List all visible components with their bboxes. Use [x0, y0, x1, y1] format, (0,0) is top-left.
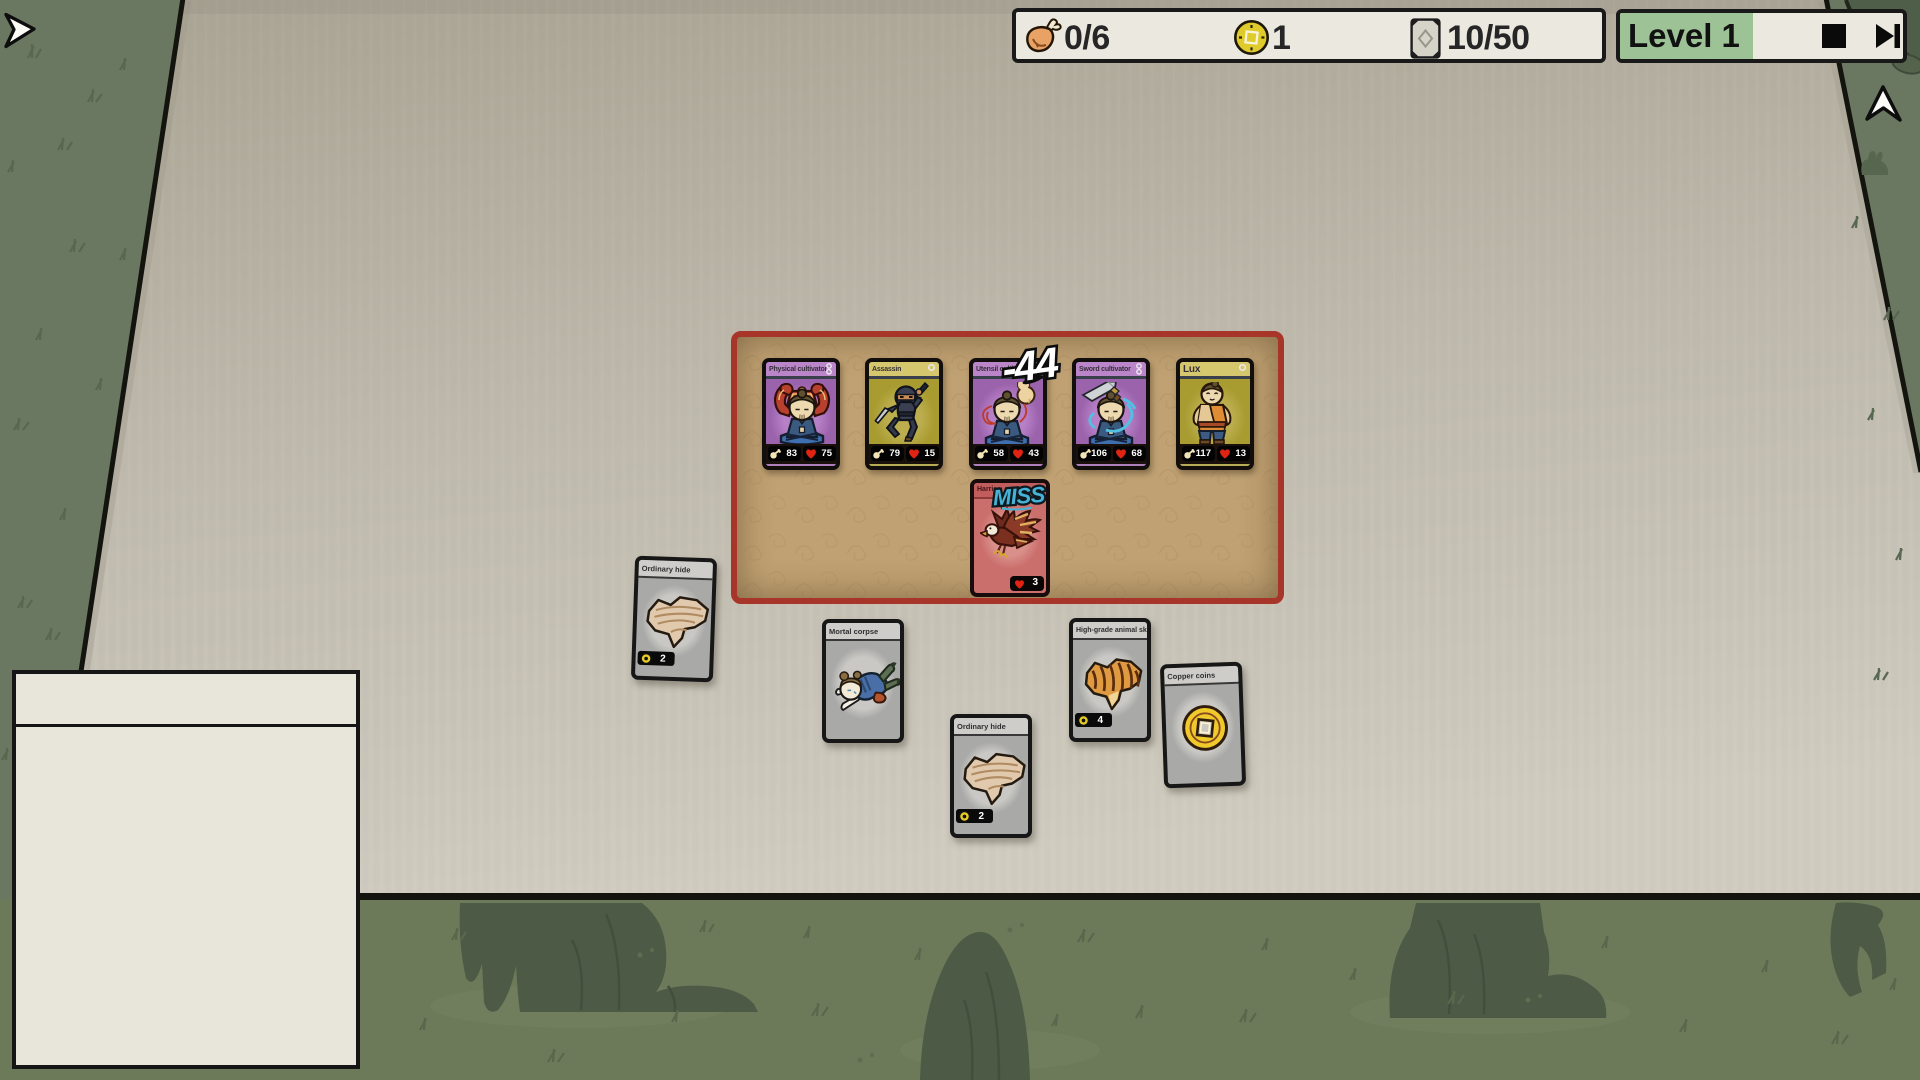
svg-text:-44: -44	[999, 338, 1061, 391]
svg-text:MISS: MISS	[992, 482, 1046, 511]
